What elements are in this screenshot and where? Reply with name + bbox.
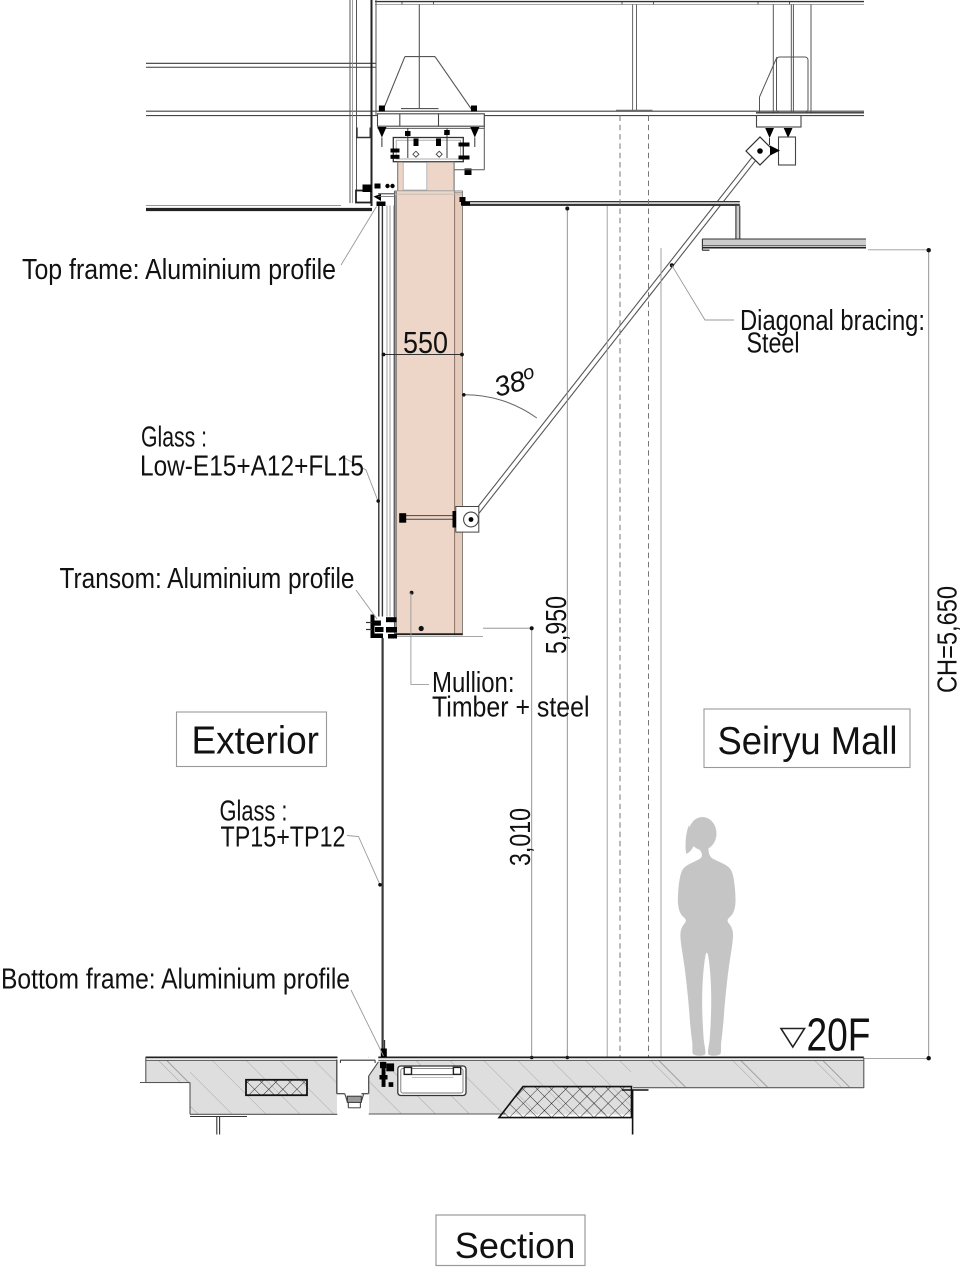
svg-text:Top frame: Aluminium profile: Top frame: Aluminium profile <box>22 254 336 286</box>
svg-text:Section: Section <box>455 1225 576 1266</box>
svg-text:5,950: 5,950 <box>541 596 573 654</box>
svg-text:TP15+TP12: TP15+TP12 <box>221 822 346 854</box>
svg-text:Steel: Steel <box>747 328 800 360</box>
svg-text:3,010: 3,010 <box>505 808 537 866</box>
svg-text:Transom: Aluminium profile: Transom: Aluminium profile <box>60 563 355 595</box>
svg-text:Seiryu Mall: Seiryu Mall <box>718 720 898 763</box>
svg-text:CH=5,650: CH=5,650 <box>932 586 960 693</box>
svg-text:20F: 20F <box>807 1009 871 1061</box>
svg-text:Timber + steel: Timber + steel <box>432 692 590 724</box>
svg-text:Glass :: Glass : <box>141 422 207 454</box>
svg-text:550: 550 <box>403 325 448 360</box>
svg-text:Bottom frame: Aluminium profil: Bottom frame: Aluminium profile <box>1 964 350 996</box>
svg-text:Low-E15+A12+FL15: Low-E15+A12+FL15 <box>140 451 364 483</box>
svg-text:Exterior: Exterior <box>192 720 320 763</box>
